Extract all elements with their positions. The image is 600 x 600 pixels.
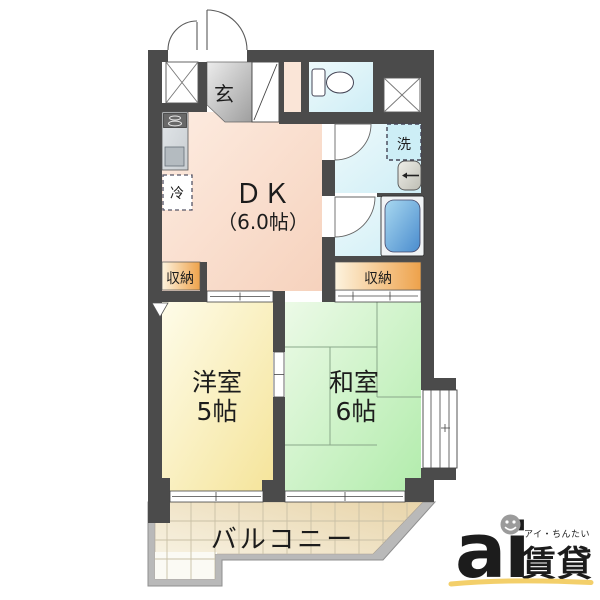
western-room-label: 洋室 <box>192 368 242 397</box>
kitchen-counter-icon <box>162 112 188 170</box>
floor-plan-page: 玄 冷 ＤＫ （6.0帖） 洗 収納 収納 洋室 5帖 和室 6帖 バルコニー … <box>0 0 600 600</box>
meter-box-icon <box>166 62 198 103</box>
hall-strip-floor <box>284 62 301 112</box>
closet-left-label: 収納 <box>166 271 194 287</box>
logo-reading-text: アイ・ちんたい <box>524 529 590 540</box>
japanese-room-window <box>285 491 405 502</box>
closet-right-label: 収納 <box>364 271 392 287</box>
washer-label: 洗 <box>397 137 411 153</box>
dk-size-label: （6.0帖） <box>217 210 309 234</box>
logo-smiley-icon <box>501 515 521 535</box>
dk-label: ＤＫ <box>235 179 291 210</box>
japanese-room-sliding-door <box>335 290 421 302</box>
stove-icon <box>164 114 187 128</box>
kitchen-sink-icon <box>165 147 184 166</box>
vanity-sink-icon <box>398 161 421 190</box>
japanese-room-label: 和室 <box>329 368 379 397</box>
fridge-label: 冷 <box>170 186 184 202</box>
bathtub-icon <box>381 196 424 256</box>
bay-window <box>423 390 457 468</box>
bathroom-doorway <box>322 196 335 237</box>
dk-sliding-door <box>207 291 273 302</box>
genkan-label: 玄 <box>214 82 234 106</box>
washroom-doorway <box>322 124 335 160</box>
japanese-room-size: 6帖 <box>336 397 377 426</box>
pipe-space-icon <box>384 78 420 112</box>
western-room-size: 5帖 <box>197 397 238 426</box>
balcony-label: バルコニー <box>211 525 355 555</box>
western-room-window <box>170 491 263 502</box>
floor-plan: 玄 冷 ＤＫ （6.0帖） 洗 収納 収納 洋室 5帖 和室 6帖 バルコニー … <box>0 0 600 600</box>
room-divider-door <box>274 352 284 397</box>
shoe-cabinet-icon <box>252 62 279 122</box>
